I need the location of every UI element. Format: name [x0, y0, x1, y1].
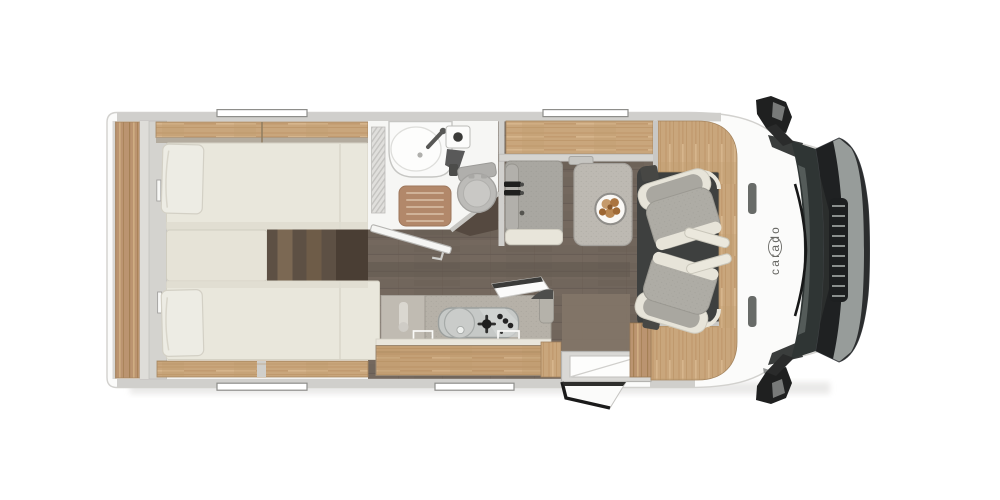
svg-text:carado: carado: [768, 225, 782, 275]
